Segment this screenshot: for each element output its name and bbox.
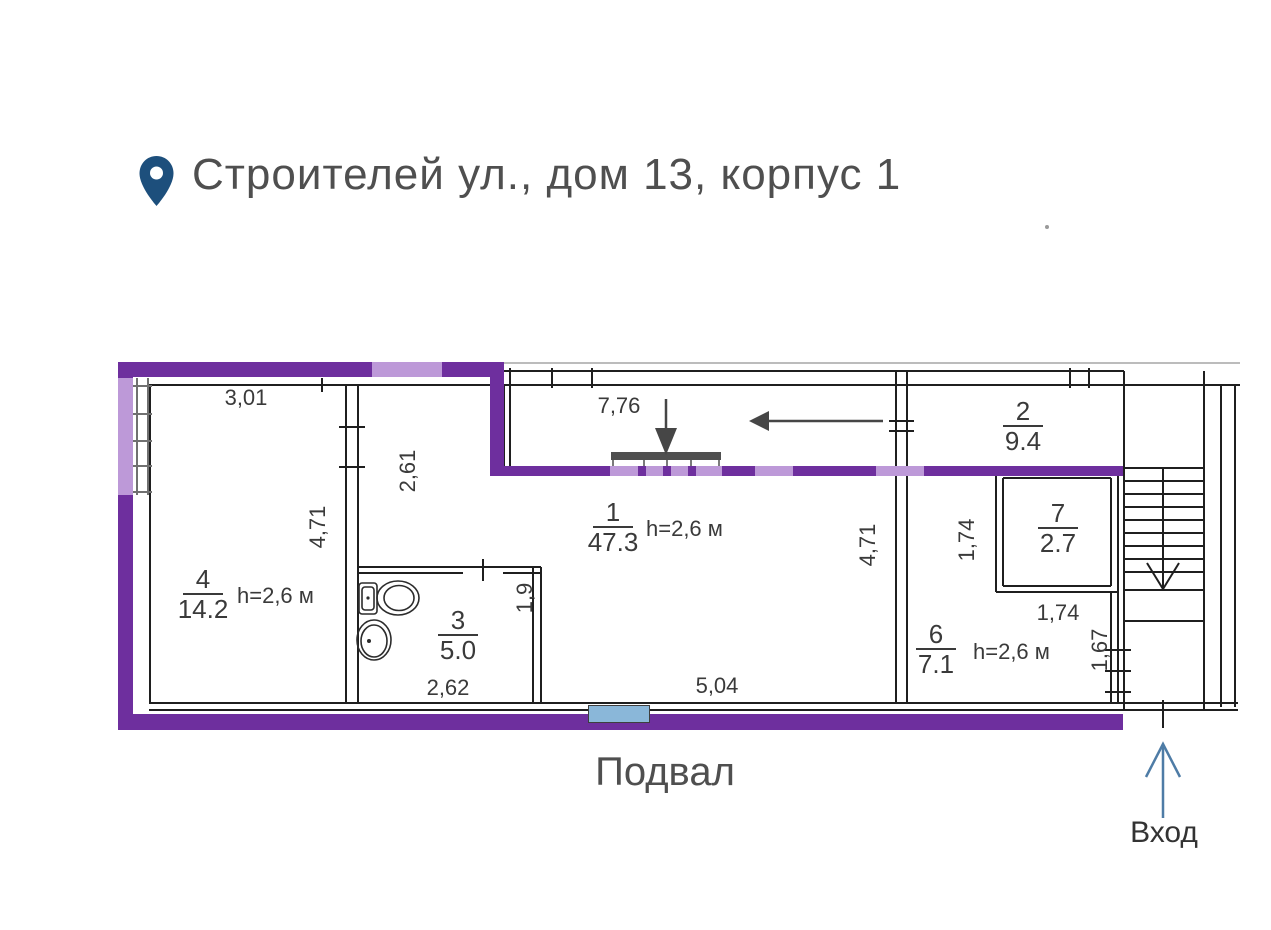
left-window-opening [118,378,133,495]
unit-boundary-top-opening [372,362,442,377]
sink-icon [357,620,391,660]
arrow-down-icon [655,399,677,455]
dim-nook-height: 2,61 [396,436,420,506]
room-number: 4 [173,566,233,592]
room-label-4: 4 14.2 [173,566,233,622]
room-area: 14.2 [173,596,233,622]
unit-boundary-top [118,362,504,377]
room6-height: h=2,6 м [973,640,1050,664]
room-area: 7.1 [906,651,966,677]
room1-height: h=2,6 м [646,517,723,541]
unit-boundary-drop [490,362,504,476]
corridor-opening-3 [876,466,924,476]
dim-bath-bottom: 2,62 [413,676,483,700]
arrow-left-icon [749,411,883,431]
dim-bath-side: 1,9 [513,563,537,633]
dim-room7-side: 1,74 [955,505,979,575]
basement-window [588,705,650,723]
floor-label: Подвал [540,750,790,795]
corridor-divider-1 [638,466,646,476]
dim-room6-side: 1,67 [1088,615,1112,685]
room-area: 2.7 [1028,530,1088,556]
corridor-divider-3 [688,466,696,476]
room-number: 2 [993,398,1053,424]
room-number: 1 [583,499,643,525]
corridor-opening-2 [755,466,793,476]
dim-room1-side: 4,71 [856,510,880,580]
room-label-1: 1 47.3 [583,499,643,555]
dim-corridor-top: 7,76 [584,394,654,418]
room-area: 47.3 [583,529,643,555]
dim-room1-bottom: 5,04 [682,674,752,698]
room-number: 7 [1028,500,1088,526]
room-label-3: 3 5.0 [428,607,488,663]
room-number: 6 [906,621,966,647]
room-label-7: 7 2.7 [1028,500,1088,556]
dim-room4-top: 3,01 [211,386,281,410]
staircase [1124,371,1204,728]
room-label-6: 6 7.1 [906,621,966,677]
room-area: 9.4 [993,428,1053,454]
room-area: 5.0 [428,637,488,663]
unit-boundary-corridor [490,466,1123,476]
entrance-label: Вход [1118,816,1210,850]
room-number: 3 [428,607,488,633]
dim-room7-bottom: 1,74 [1023,601,1093,625]
floorplan-page: Строителей ул., дом 13, корпус 1 [0,0,1271,930]
room4-height: h=2,6 м [237,584,314,608]
room-label-2: 2 9.4 [993,398,1053,454]
toilet-icon [359,581,419,615]
corridor-divider-2 [663,466,671,476]
dim-room4-side: 4,71 [306,492,330,562]
entrance-arrow-icon [1146,744,1180,818]
